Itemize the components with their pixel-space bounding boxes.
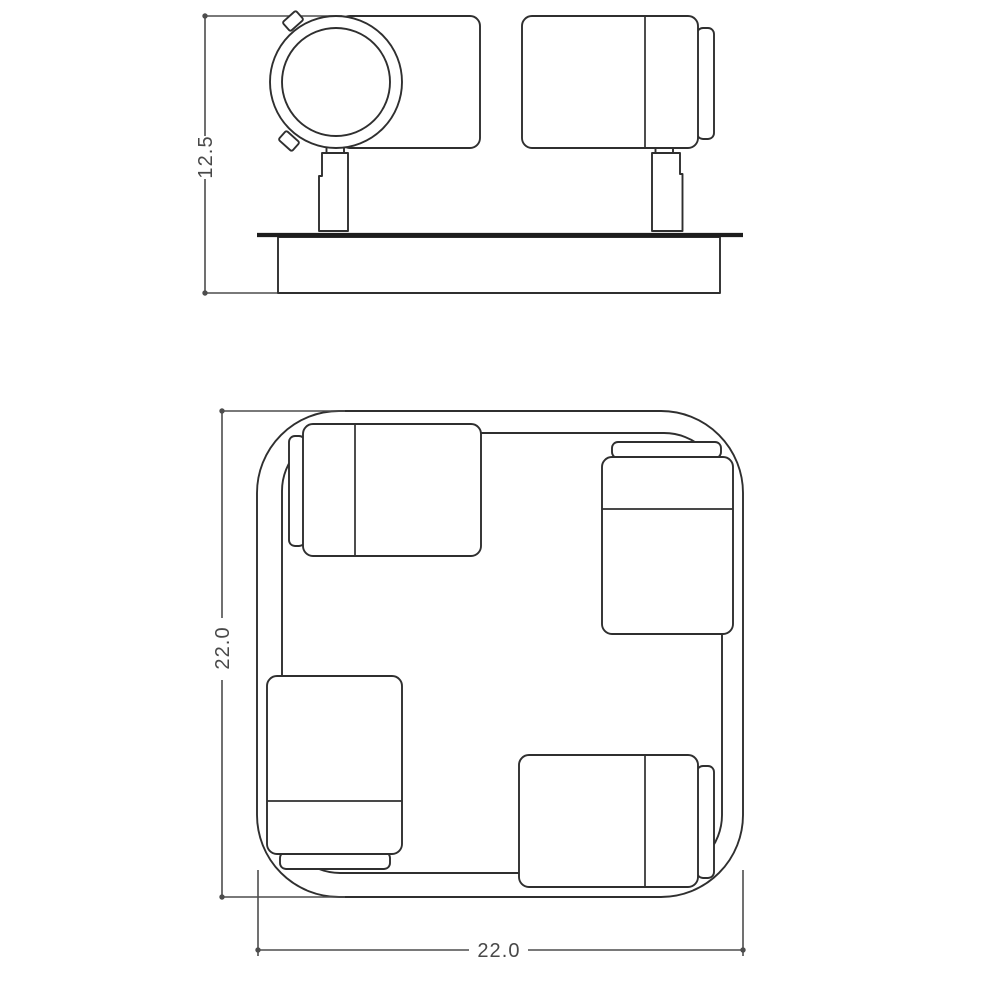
- plan-view: 22.0 22.0: [212, 408, 746, 962]
- plan-head-top-right: [602, 442, 733, 634]
- base-plate-side: [278, 237, 720, 293]
- head-body: [602, 457, 733, 634]
- head-back-cap: [697, 28, 714, 139]
- dimension-tick: [219, 894, 224, 899]
- plan-head-bottom-left: [267, 676, 402, 869]
- dimension-tick: [740, 947, 745, 952]
- mount-stem-right: [652, 147, 683, 231]
- base-plate-body: [278, 237, 720, 293]
- head-body: [267, 676, 402, 854]
- spot-head-side-view: [522, 16, 714, 148]
- dimension-tick: [255, 947, 260, 952]
- spotlight-technical-drawing: 12.5: [0, 0, 1000, 1000]
- plan-width-dimension-label: 22.0: [477, 940, 520, 962]
- head-back-cap: [612, 442, 721, 458]
- dimension-tick: [202, 290, 207, 295]
- spot-head-front-view: [270, 11, 480, 152]
- stem-body: [652, 153, 683, 231]
- head-body: [519, 755, 698, 887]
- head-body: [303, 424, 481, 556]
- lens-bezel-outer: [270, 16, 402, 148]
- dimension-tick: [219, 408, 224, 413]
- plan-head-top-left: [289, 424, 481, 556]
- dimension-tick: [202, 13, 207, 18]
- drawing-canvas: 12.5: [0, 0, 1000, 1000]
- head-body: [522, 16, 698, 148]
- side-height-dimension-label: 12.5: [195, 135, 217, 178]
- head-back-cap: [697, 766, 714, 878]
- plan-head-bottom-right: [519, 755, 714, 887]
- stem-body: [319, 153, 348, 231]
- plan-height-dimension-label: 22.0: [212, 626, 234, 669]
- mount-stem-left: [319, 147, 348, 231]
- side-view: 12.5: [195, 11, 743, 296]
